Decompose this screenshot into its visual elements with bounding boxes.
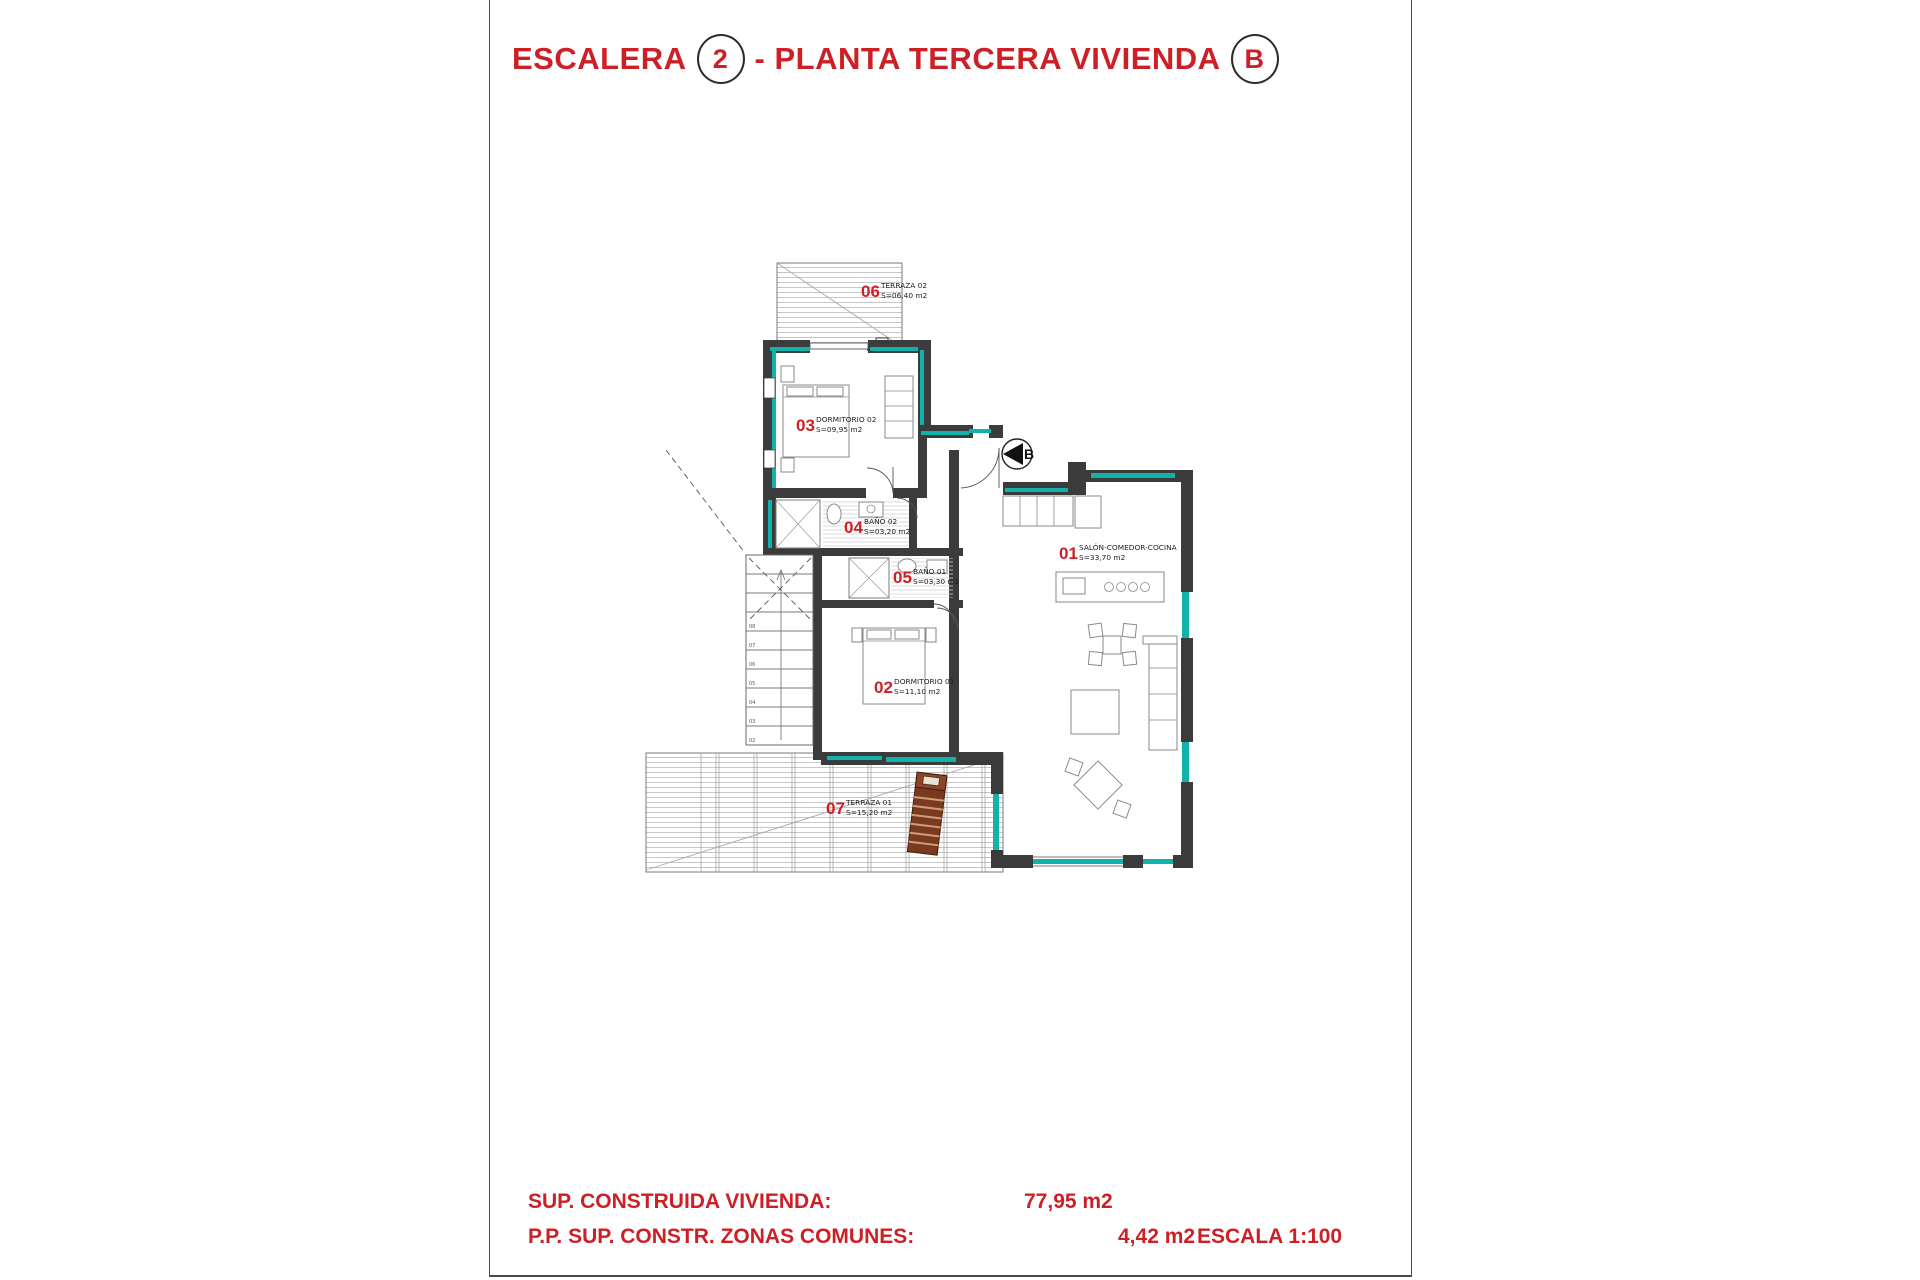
stair-step-number: 08 — [749, 624, 755, 630]
room-label-salon: 01 SALÓN-COMEDOR-COCINA S=33,70 m2 — [1059, 543, 1177, 563]
drawing-sheet: ESCALERA 2 - PLANTA TERCERA VIVIENDA B — [489, 0, 1412, 1277]
svg-text:04: 04 — [844, 518, 863, 537]
room-label-terraza-02: 06 TERRAZA 02 S=06,40 m2 — [861, 281, 927, 301]
svg-text:BAÑO 02: BAÑO 02 — [864, 517, 897, 526]
stair-step-number: 05 — [749, 681, 755, 687]
floor-plan: 02 03 04 05 06 07 08 — [631, 200, 1201, 890]
footer-built-area: SUP. CONSTRUIDA VIVIENDA: 77,95 m2 — [528, 1190, 831, 1214]
svg-text:S=11,10 m2: S=11,10 m2 — [894, 687, 940, 696]
access-compass: B — [1002, 439, 1034, 469]
common-zones-value: 4,42 m2 — [1118, 1225, 1195, 1249]
terrace-02 — [777, 263, 902, 351]
svg-text:TERRAZA 01: TERRAZA 01 — [845, 798, 892, 807]
room-label-dormitorio-02: 03 DORMITORIO 02 S=09,95 m2 — [796, 415, 876, 435]
stair-step-number: 06 — [749, 662, 755, 668]
compass-letter: B — [1024, 446, 1034, 462]
built-area-label: SUP. CONSTRUIDA VIVIENDA: — [528, 1190, 831, 1213]
svg-text:S=33,70 m2: S=33,70 m2 — [1079, 553, 1125, 562]
stair-step-number: 03 — [749, 719, 755, 725]
scale-note: ESCALA 1:100 — [1197, 1225, 1342, 1249]
floor-plan-area: 02 03 04 05 06 07 08 — [631, 200, 1201, 890]
svg-text:DORMITORIO 02: DORMITORIO 02 — [816, 415, 876, 424]
svg-text:BAÑO 01: BAÑO 01 — [913, 567, 947, 576]
svg-text:S=06,40 m2: S=06,40 m2 — [881, 291, 927, 300]
svg-text:S=03,20 m2: S=03,20 m2 — [864, 527, 910, 536]
svg-text:01: 01 — [1059, 544, 1078, 563]
stair-step-number: 07 — [749, 643, 755, 649]
room-label-terraza-01: 07 TERRAZA 01 S=15,20 m2 — [826, 798, 892, 818]
sheet-title: ESCALERA 2 - PLANTA TERCERA VIVIENDA B — [512, 34, 1279, 84]
svg-text:DORMITORIO 01: DORMITORIO 01 — [894, 677, 955, 686]
svg-text:05: 05 — [893, 568, 912, 587]
built-area-value: 77,95 m2 — [1024, 1190, 1113, 1214]
title-word-planta: - PLANTA TERCERA VIVIENDA — [755, 41, 1221, 77]
svg-text:S=09,95 m2: S=09,95 m2 — [816, 425, 862, 434]
svg-text:SALÓN-COMEDOR-COCINA: SALÓN-COMEDOR-COCINA — [1079, 543, 1177, 552]
room-label-dormitorio-01: 02 DORMITORIO 01 S=11,10 m2 — [874, 677, 955, 697]
svg-text:02: 02 — [874, 678, 893, 697]
svg-text:07: 07 — [826, 799, 845, 818]
svg-text:03: 03 — [796, 416, 815, 435]
stair-number-badge: 2 — [697, 34, 745, 84]
common-zones-label: P.P. SUP. CONSTR. ZONAS COMUNES: — [528, 1225, 914, 1248]
svg-text:S=03,30 m2: S=03,30 m2 — [913, 577, 959, 586]
title-word-escalera: ESCALERA — [512, 41, 687, 77]
svg-text:S=15,20 m2: S=15,20 m2 — [846, 808, 892, 817]
svg-text:06: 06 — [861, 282, 880, 301]
svg-text:TERRAZA 02: TERRAZA 02 — [880, 281, 927, 290]
stair-step-number: 02 — [749, 738, 755, 744]
dwelling-letter-badge: B — [1231, 34, 1279, 84]
terrace-01 — [646, 753, 1003, 872]
footer-common-zones: P.P. SUP. CONSTR. ZONAS COMUNES: 4,42 m2 — [528, 1225, 914, 1249]
stair-step-number: 04 — [749, 700, 755, 706]
